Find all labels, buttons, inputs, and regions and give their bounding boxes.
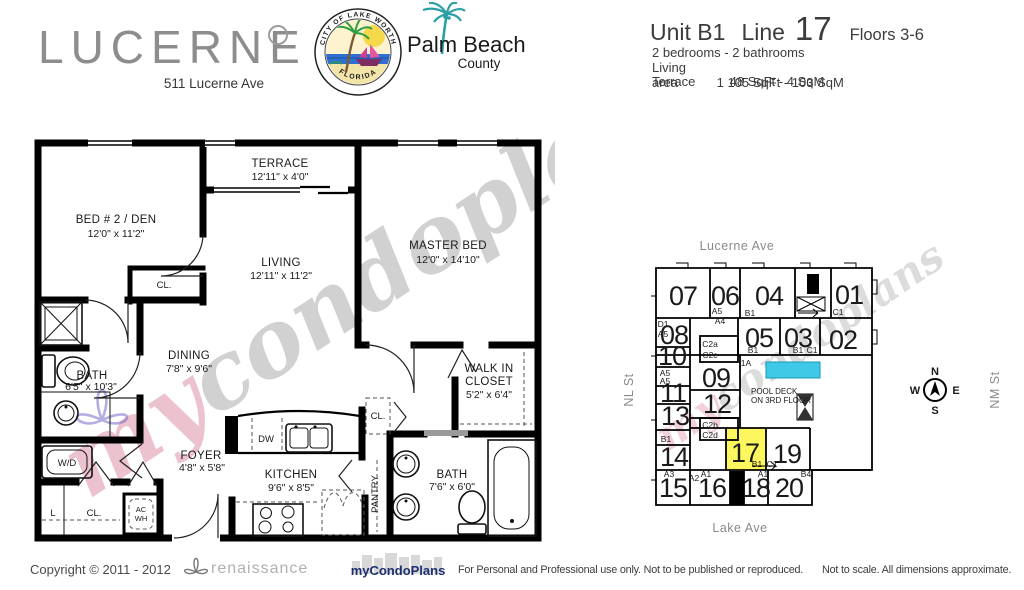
type-a4: A4	[715, 316, 726, 326]
stove	[236, 502, 320, 536]
type-b1-03: B1	[793, 345, 804, 355]
label-washer-dryer: W/D	[58, 458, 77, 469]
type-b4: B4	[801, 469, 812, 479]
compass-w: W	[910, 385, 921, 397]
label-cl-entry: CL.	[87, 508, 102, 519]
street-nm-st: NM St	[988, 371, 1002, 408]
type-a3: A3	[664, 469, 675, 479]
type-d1: D1	[658, 319, 669, 329]
unit-label: Unit B1	[650, 19, 725, 46]
keyplan-unit-04: 04	[755, 281, 784, 311]
keyplan-unit-02: 02	[829, 325, 857, 355]
bath2-sinks	[393, 451, 419, 520]
label-wh: WH	[135, 514, 148, 523]
room-dims-bath2: 7'6" x 6'0"	[429, 481, 475, 493]
label-cl-hall: CL.	[371, 411, 386, 422]
compass-n: N	[931, 366, 939, 378]
room-dims-walkin: 5'2" x 6'4"	[466, 389, 512, 401]
street-nl-st: NL St	[622, 373, 636, 406]
room-dims-terrace: 12'11" x 4'0"	[252, 171, 309, 183]
type-b1-13: B1	[661, 434, 672, 444]
north-arrow-icon	[930, 381, 940, 396]
room-label-walkin-2: CLOSET	[465, 376, 513, 388]
kitchen-sink	[286, 424, 332, 452]
room-label-terrace: TERRACE	[251, 158, 308, 170]
renaissance-logo: renaissance	[183, 552, 308, 580]
type-a5-d1: A5	[658, 329, 669, 339]
room-label-foyer: FOYER	[180, 450, 221, 462]
unit-floorplan-drawing: mycondoplans	[20, 128, 555, 553]
lake-worth-seal-logo: CITY OF LAKE WORTH FLORIDA	[310, 6, 406, 100]
palm-beach-county-logo: Palm Beach County	[405, 2, 553, 78]
room-label-dining: DINING	[168, 350, 210, 362]
type-b1-17: B1	[752, 459, 763, 469]
room-dims-dining: 7'8" x 9'6"	[166, 363, 212, 375]
beds-baths: 2 bedrooms - 2 bathrooms	[652, 45, 804, 60]
pool-deck-label-2: ON 3RD FLOOR	[751, 396, 811, 405]
building-key-plan: mycondoplans Lucerne Ave Lake Ave NL St …	[600, 238, 1024, 540]
label-ac: AC	[136, 505, 147, 514]
compass-rose: N S W E	[910, 366, 960, 417]
kitchen-counter	[238, 411, 360, 453]
room-label-living: LIVING	[261, 257, 301, 269]
pool	[766, 362, 820, 378]
room-dims-master: 12'0" x 14'10"	[416, 254, 480, 266]
keyplan-unit-13: 13	[661, 401, 689, 431]
toilet2	[458, 491, 486, 534]
room-dims-kitchen: 9'6" x 8'5"	[268, 482, 314, 494]
type-a1-16: A1	[701, 469, 712, 479]
line-number: 17	[795, 10, 832, 48]
unit-info-title: Unit B1 Line 17 Floors 3-6	[650, 10, 924, 48]
terrace-row: Terrace 48 SqFt - 4 SqM	[652, 74, 824, 89]
refrigerator	[322, 490, 364, 535]
building-address: 511 Lucerne Ave	[40, 76, 264, 91]
compass-e: E	[952, 385, 959, 397]
keyplan-unit-12: 12	[703, 389, 731, 419]
terrace-label: Terrace	[652, 74, 713, 89]
renaissance-wordmark: renaissance	[211, 560, 308, 578]
pool-deck-label-1: POOL DECK	[751, 387, 798, 396]
room-dims-living: 12'11" x 11'2"	[250, 270, 312, 282]
terrace-value: 48 SqFt - 4 SqM	[717, 74, 825, 89]
copyright-text: Copyright © 2011 - 2012	[30, 562, 171, 577]
label-dishwasher: DW	[258, 434, 274, 445]
mycondoplans-logo: myCondoPlans	[350, 552, 446, 578]
line-label: Line	[741, 19, 784, 46]
type-1a: 1A	[741, 358, 752, 368]
room-dims-bed2: 12'0" x 11'2"	[88, 228, 145, 240]
room-dims-bath1: 6'5" x 10'3"	[65, 381, 117, 393]
mycondoplans-wordmark: myCondoPlans	[350, 563, 446, 578]
hall-closet-door	[394, 402, 406, 432]
label-pantry: PANTRY	[370, 475, 381, 513]
pantry-fold-door	[339, 460, 352, 492]
keyplan-unit-07: 07	[669, 281, 697, 311]
entry-door	[174, 494, 218, 538]
bathtub	[488, 440, 536, 536]
type-c1-01: C1	[833, 307, 844, 317]
label-linen: L	[50, 508, 55, 519]
street-lake-ave: Lake Ave	[712, 521, 767, 535]
type-c1-03: C1	[807, 345, 818, 355]
scale-disclaimer: Not to scale. All dimensions approximate…	[822, 564, 1011, 576]
room-label-walkin-1: WALK IN	[465, 363, 514, 375]
compass-s: S	[931, 405, 938, 417]
room-label-kitchen: KITCHEN	[265, 469, 318, 481]
type-a5-s2: A5	[660, 376, 671, 386]
floors-label: Floors 3-6	[850, 26, 924, 45]
type-c2d: C2d	[702, 430, 718, 440]
keyplan-unit-10: 10	[658, 341, 686, 371]
usage-notice: For Personal and Professional use only. …	[458, 564, 803, 576]
room-label-master: MASTER BED	[409, 240, 487, 252]
county-logo-line1: Palm Beach	[407, 32, 526, 57]
shower	[40, 302, 82, 345]
type-c2c: C2c	[702, 350, 718, 360]
type-c2b: C2b	[702, 420, 718, 430]
keyplan-unit-14: 14	[660, 442, 689, 472]
keyplan-unit-20: 20	[775, 473, 803, 503]
type-a1-18: A1	[758, 469, 769, 479]
room-label-bed2: BED # 2 / DEN	[76, 214, 157, 226]
county-logo-line2: County	[458, 56, 501, 71]
type-c2a: C2a	[702, 339, 718, 349]
trefoil-logo-icon	[183, 552, 209, 580]
keyplan-unit-01: 01	[835, 280, 863, 310]
room-label-bath2: BATH	[436, 469, 467, 481]
room-dims-foyer: 4'8" x 5'8"	[179, 462, 225, 474]
type-a2: A2	[689, 473, 700, 483]
type-a5-06: A5	[712, 306, 723, 316]
street-lucerne-ave: Lucerne Ave	[700, 239, 775, 253]
building-name: LUCERNE	[38, 20, 307, 74]
floorplan-brochure-page: LUCERNE 511 Lucerne Ave CITY OF LAKE WOR…	[0, 0, 1024, 590]
label-cl-bed2: CL.	[157, 280, 172, 291]
pocket-door	[424, 430, 468, 436]
type-b1-05: B1	[748, 345, 759, 355]
type-b1-04: B1	[745, 308, 756, 318]
type-c1-19: C1	[767, 459, 778, 469]
registered-ring-icon	[268, 25, 288, 45]
